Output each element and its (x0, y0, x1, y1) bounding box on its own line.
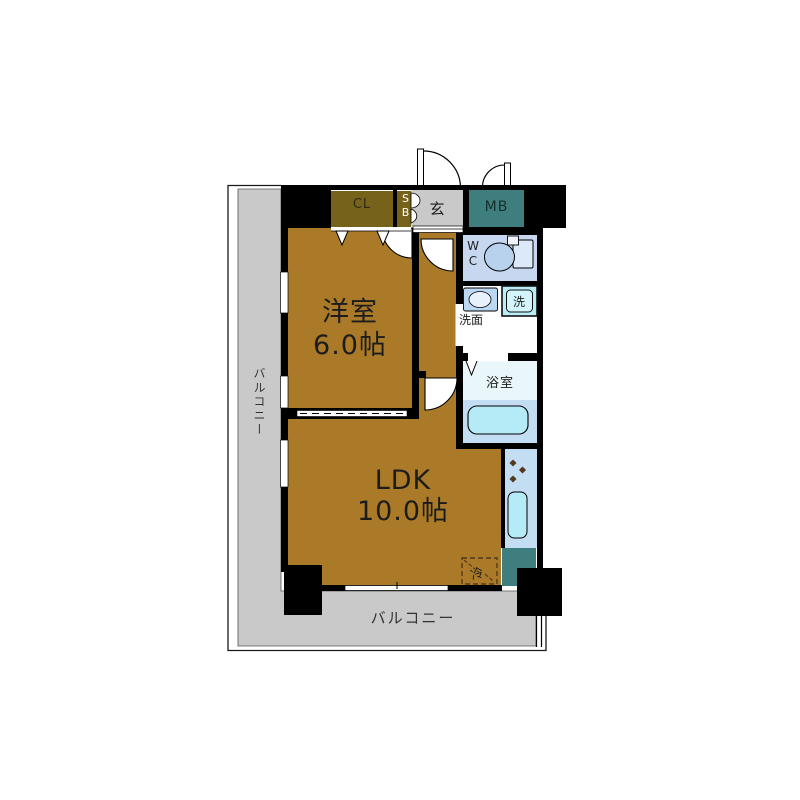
bathtub-icon (468, 406, 528, 434)
vanity-basin-icon (469, 292, 491, 308)
bathroom-label: 浴室 (463, 372, 537, 391)
toilet-bowl-icon (485, 243, 515, 271)
pillar-bottom-right (517, 568, 562, 616)
western-room-label: 洋室 6.0帖 (283, 296, 417, 362)
washroom-label: 洗面 (459, 311, 483, 328)
pillar-bottom-left (284, 565, 322, 615)
floor-plan-drawing (0, 0, 800, 800)
meter-box-label: MB (469, 199, 524, 215)
entrance-label: 玄 (411, 198, 463, 219)
wall-top-left-block (281, 185, 331, 228)
wall-hall-right-lower (456, 346, 463, 353)
western-room-size: 6.0帖 (283, 329, 417, 362)
western-room-name: 洋室 (283, 296, 417, 329)
toilet-button-icon (508, 236, 519, 245)
wall-right (537, 228, 543, 570)
ldk-name: LDK (328, 465, 478, 496)
kitchen-sink-icon (508, 492, 527, 538)
wall-stub-hall (412, 371, 426, 378)
wall-bath-bottom (456, 443, 543, 449)
ldk-size: 10.0帖 (328, 496, 478, 527)
shoe-box-label: SB (396, 192, 412, 227)
floor-plan-page: CL SB 玄 MB WC 洗面 洗 浴室 洋室 6.0帖 LDK 10.0帖 … (0, 0, 800, 800)
balcony-left-label: バルコニー (250, 367, 268, 467)
balcony-bottom-label: バルコニー (338, 607, 488, 628)
closet-front-band (331, 227, 411, 231)
entrance-door-leaf (418, 149, 424, 189)
bathroom-doorway (468, 353, 508, 362)
ldk-label: LDK 10.0帖 (328, 465, 478, 527)
wall-hall-right-upper (456, 232, 463, 304)
wall-top-right-block (524, 186, 566, 228)
washing-machine-label: 洗 (506, 293, 532, 310)
window-left-middle (281, 376, 289, 408)
wall-bath-left (456, 353, 463, 449)
toilet-label: WC (465, 239, 481, 275)
wall-kitchen-left (501, 449, 505, 548)
closet-label: CL (331, 197, 393, 212)
wall-wc-top (463, 227, 543, 235)
meter-box-door-leaf (505, 163, 511, 188)
window-left-lower (281, 440, 289, 487)
